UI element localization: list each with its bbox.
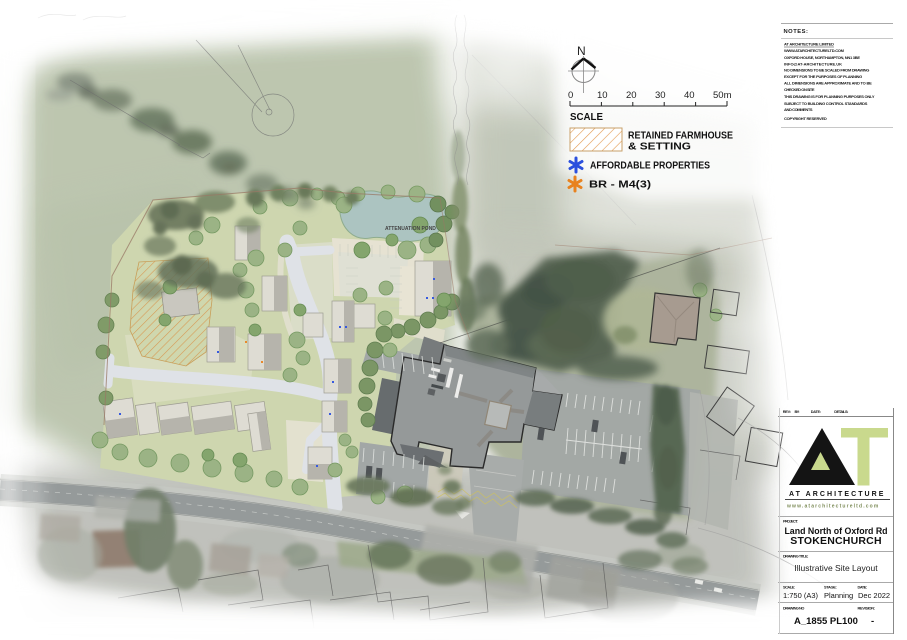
svg-text:EXCEPT FOR THE PURPOSES OF PLA: EXCEPT FOR THE PURPOSES OF PLANNING xyxy=(784,74,862,79)
svg-text:SCALE:: SCALE: xyxy=(783,585,795,590)
svg-text:INFO@AT-ARCHITECTURE.UK: INFO@AT-ARCHITECTURE.UK xyxy=(784,61,842,66)
svg-text:COPYRIGHT RESERVED: COPYRIGHT RESERVED xyxy=(784,116,827,121)
svg-text:DATE:: DATE: xyxy=(811,409,821,414)
svg-text:DATE:: DATE: xyxy=(858,585,868,590)
svg-text:ALL DIMENSIONS ARE APPROXIMATE: ALL DIMENSIONS ARE APPROXIMATE AND TO BE xyxy=(784,81,872,86)
svg-text:NOTES:: NOTES: xyxy=(784,29,809,35)
svg-text:NO DIMENSIONS TO BE SCALED FRO: NO DIMENSIONS TO BE SCALED FROM DRAWING xyxy=(784,68,869,73)
svg-text:AND COMMENTS: AND COMMENTS xyxy=(784,107,813,112)
svg-text:DETAILS:: DETAILS: xyxy=(834,409,848,414)
svg-text:THIS DRAWING IS FOR PLANNING P: THIS DRAWING IS FOR PLANNING PURPOSES ON… xyxy=(784,94,875,99)
svg-text:DRAWING NO: DRAWING NO xyxy=(783,606,804,611)
svg-text:CHECKED ON SITE: CHECKED ON SITE xyxy=(784,87,815,92)
svg-text:OXFORD HOUSE, NORTHAMPTON, NN1: OXFORD HOUSE, NORTHAMPTON, NN1 3BE xyxy=(784,55,860,60)
svg-text:REVISION:: REVISION: xyxy=(858,606,876,611)
svg-text:BY:: BY: xyxy=(795,409,800,414)
svg-text:REV:: REV: xyxy=(783,409,791,414)
svg-text:PROJECT:: PROJECT: xyxy=(783,519,798,524)
svg-text:WWW.ATARCHITECTURELTD.COM: WWW.ATARCHITECTURELTD.COM xyxy=(784,48,845,53)
svg-text:DRAWING TITLE:: DRAWING TITLE: xyxy=(783,554,808,559)
svg-text:STAGE:: STAGE: xyxy=(824,585,837,590)
svg-text:AT ARCHITECTURE LIMITED: AT ARCHITECTURE LIMITED xyxy=(784,42,834,47)
svg-text:SUBJECT TO BUILDING CONTROL ST: SUBJECT TO BUILDING CONTROL STANDARDS xyxy=(784,101,868,106)
